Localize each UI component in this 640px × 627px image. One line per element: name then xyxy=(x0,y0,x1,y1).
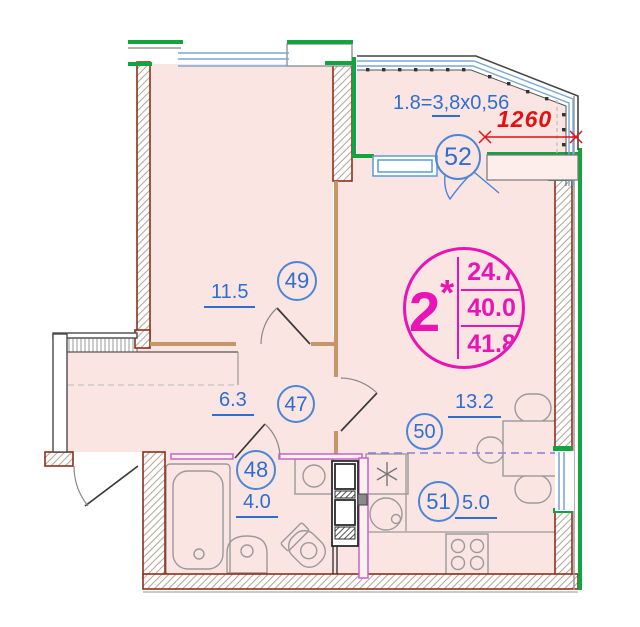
room-circle-49: 49 xyxy=(277,261,317,301)
room-count: 2 xyxy=(409,280,440,343)
asterisk: * xyxy=(440,272,454,313)
formula-underlined: 3,8 xyxy=(432,92,460,117)
right-window xyxy=(555,451,574,511)
balcony-window-sill xyxy=(373,156,437,176)
apartment-summary-stamp: 2* 24.7 40.0 41.8 xyxy=(403,247,525,369)
room-circle-51: 51 xyxy=(418,481,459,522)
area-label-49: 11.5 xyxy=(204,281,255,308)
table-top xyxy=(503,421,557,476)
door-entrance xyxy=(74,466,138,506)
area-label-47: 6.3 xyxy=(212,389,254,416)
chair xyxy=(477,437,504,463)
room-circle-50: 50 xyxy=(406,413,443,450)
dimension-text-1260: 1260 xyxy=(497,106,552,133)
room-circle-52: 52 xyxy=(435,134,481,180)
floor-plan-drawing xyxy=(0,0,640,627)
chair xyxy=(515,394,551,422)
apartment-type: 2* xyxy=(406,272,454,344)
room-circle-48: 48 xyxy=(236,450,276,490)
room-circle-47: 47 xyxy=(277,385,315,423)
chair xyxy=(515,475,551,503)
stamp-divider xyxy=(457,257,459,359)
area-label-50: 13.2 xyxy=(448,391,501,418)
formula-prefix: 1.8= xyxy=(393,92,432,114)
apartment-area-value: 40.0 xyxy=(461,289,522,325)
glazing-formula: 1.8=3,8x0,56 xyxy=(393,92,509,115)
floor-plan: 49 47 48 50 51 52 11.5 6.3 4.0 13.2 5.0 … xyxy=(0,0,640,627)
area-label-51: 5.0 xyxy=(455,492,497,519)
area-label-48: 4.0 xyxy=(236,491,278,518)
balcony-parapet-wall xyxy=(487,155,578,180)
